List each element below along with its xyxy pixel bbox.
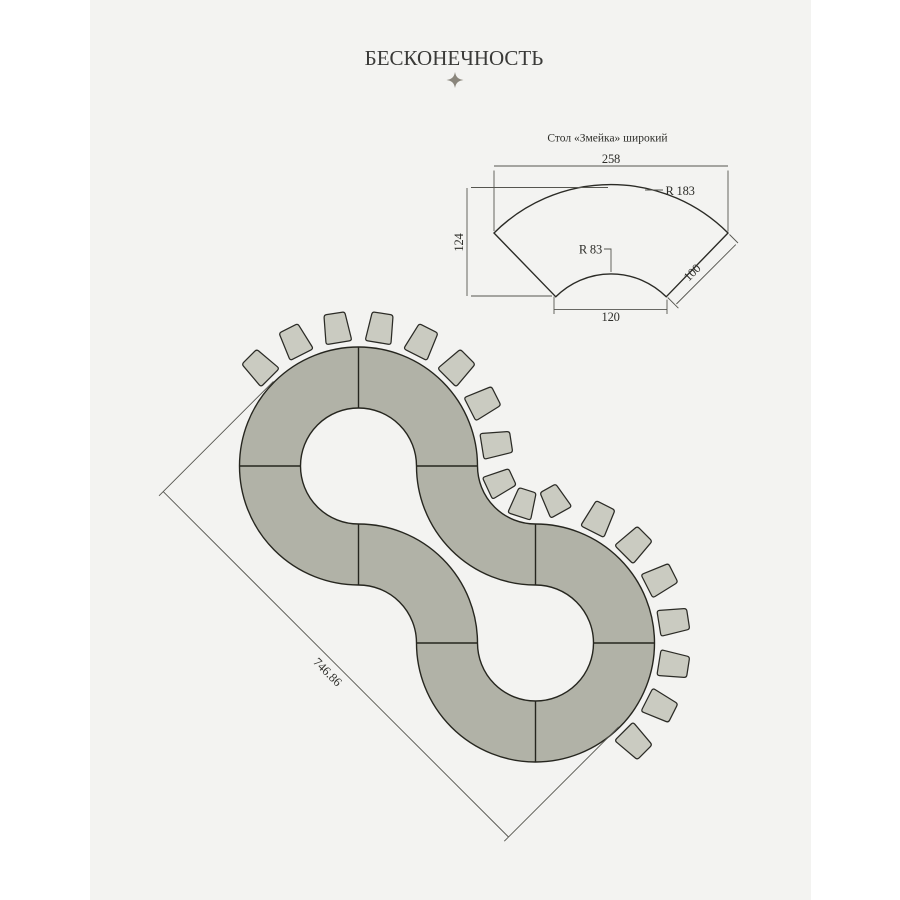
- svg-text:R 83: R 83: [579, 243, 602, 257]
- svg-text:258: 258: [602, 152, 620, 166]
- svg-text:120: 120: [602, 310, 620, 324]
- svg-text:БЕСКОНЕЧНОСТЬ: БЕСКОНЕЧНОСТЬ: [365, 46, 544, 70]
- svg-text:R 183: R 183: [666, 184, 695, 198]
- svg-text:Стол «Змейка» широкий: Стол «Змейка» широкий: [547, 133, 667, 145]
- svg-text:124: 124: [452, 232, 466, 251]
